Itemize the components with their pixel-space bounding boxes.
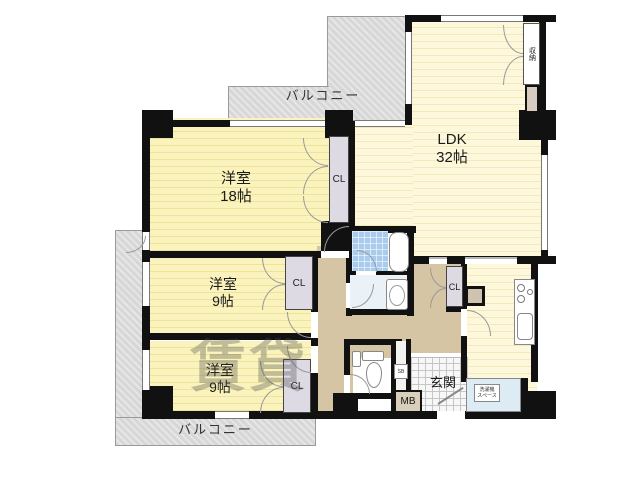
balcony-top-label: バルコニー: [248, 88, 398, 106]
stove-burner-3: [527, 289, 533, 295]
door-gap-room9-middle: [311, 312, 318, 338]
closet-room18: CL: [329, 136, 349, 223]
balcony-bottom-label: バルコニー: [148, 422, 283, 440]
window-ldk-left: [405, 32, 412, 104]
pillar-bottom-center: [333, 393, 358, 415]
pillar-right: [519, 110, 556, 140]
window-left-2: [142, 262, 150, 306]
closet-room18-label: CL: [333, 174, 346, 185]
room9m-label: 洋室 9帖: [163, 276, 283, 316]
opening-kitchen-ldk: [465, 257, 517, 264]
opening-hall-ldk: [429, 257, 447, 264]
stove-burner-2: [517, 295, 525, 303]
floor-plan: CL CL CL CL 収納 SB MB 洗濯機 スペース 洋: [0, 0, 640, 480]
watermark: 賃貸: [190, 322, 308, 403]
window-left-3: [142, 350, 150, 390]
wall-right-upper: [539, 15, 546, 115]
laundry-label-line2: スペース: [477, 393, 496, 400]
bathtub: [389, 232, 409, 272]
entrance-label: 玄関: [420, 375, 466, 391]
window-ldk-right: [541, 155, 548, 250]
entrance-step: [409, 353, 468, 358]
pillar-bottom-right: [524, 391, 556, 419]
room18-label: 洋室 18帖: [176, 170, 296, 212]
ldk-size: 32帖: [392, 149, 512, 167]
room9m-name: 洋室: [163, 276, 283, 293]
door-gap-room18: [321, 251, 349, 258]
shoe-box-label: SB: [398, 369, 405, 375]
pillar-top-left: [142, 110, 173, 138]
storage-label: 収納: [527, 47, 537, 61]
window-ldk-top: [441, 15, 523, 22]
wall-room18-top: [170, 120, 230, 127]
shoe-box: SB: [394, 364, 408, 379]
kitchen-sink: [517, 313, 533, 340]
closet-room9-middle-label: CL: [293, 278, 306, 289]
entry-door-gap: [437, 411, 465, 419]
ldk-label: LDK 32帖: [392, 131, 512, 173]
stove-burner-1: [517, 284, 525, 292]
closet-room9-middle: CL: [285, 256, 313, 310]
room18-size: 18帖: [176, 188, 296, 206]
closet-hall: CL: [446, 266, 463, 307]
pillar-top-center: [325, 110, 353, 138]
toilet-bowl: [366, 362, 382, 388]
window-bottom: [215, 411, 249, 419]
meter-box: MB: [394, 390, 422, 413]
toilet-tank: [362, 351, 384, 361]
toilet-hand-basin: [352, 351, 361, 367]
room9m-size: 9帖: [163, 293, 283, 310]
door-gap-room9-bottom: [311, 346, 318, 373]
room18-name: 洋室: [176, 170, 296, 188]
pipe-space: [525, 85, 539, 113]
closet-hall-label: CL: [449, 282, 461, 292]
storage-box: 収納: [523, 23, 540, 85]
laundry-label-box: 洗濯機 スペース: [474, 384, 500, 402]
window-room18-top: [230, 120, 325, 127]
meter-box-label: MB: [401, 396, 416, 407]
window-ldk-balcony: [355, 120, 405, 127]
washbasin-bowl: [389, 285, 405, 306]
ldk-name: LDK: [392, 131, 512, 149]
kitchen-hatch-box: [465, 286, 485, 306]
